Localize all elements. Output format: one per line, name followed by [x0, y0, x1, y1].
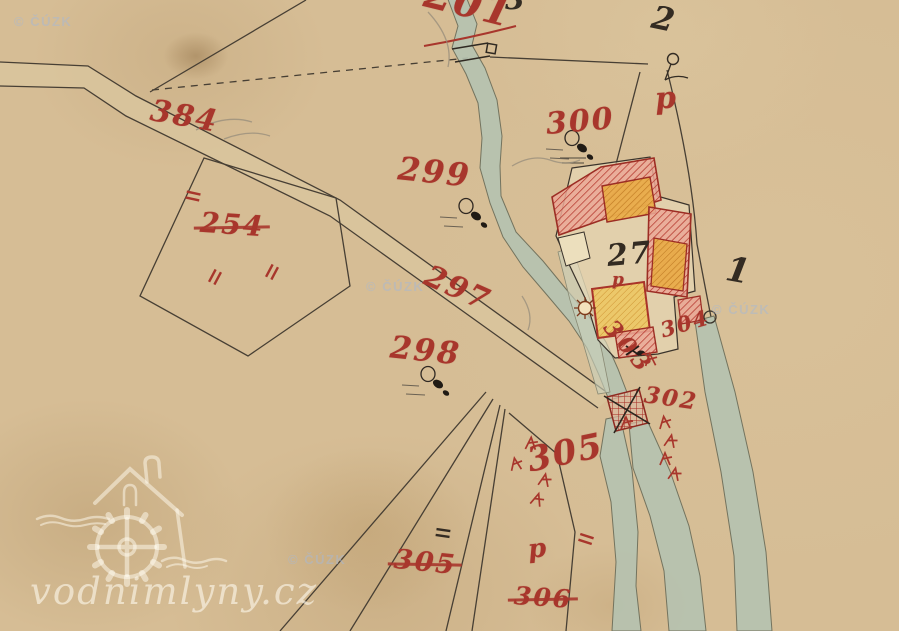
parcel-label-305: 305 [393, 546, 458, 579]
road-band [0, 62, 612, 408]
boundary-tick-mark [186, 192, 201, 201]
survey-arrow-mark [509, 457, 523, 471]
parcel-label-306: 306 [513, 583, 573, 612]
parcel-label-p: p [654, 83, 679, 115]
parcel-label-p: p [527, 535, 550, 563]
parcel-label-27: 27 [606, 238, 654, 272]
boundary-tick-mark [209, 269, 221, 284]
cuzk-watermark: © ČÚZK [366, 279, 424, 294]
site-watermark-text: vodnimlyny.cz [30, 570, 318, 613]
tree-symbol [440, 199, 488, 229]
boundary-tick-mark [436, 529, 451, 537]
survey-arrow-mark [664, 434, 678, 448]
cuzk-watermark: © ČÚZK [712, 302, 770, 317]
boundary-tick-mark [266, 264, 278, 279]
cuzk-watermark: © ČÚZK [14, 14, 72, 29]
parcel-label-299: 299 [397, 152, 473, 191]
map-viewport[interactable]: 20132384254299300297298271pp304303302305… [0, 0, 899, 631]
parcel-label-254: 254 [199, 209, 265, 241]
water-wheel-symbol [574, 297, 596, 319]
cuzk-watermark: © ČÚZK [288, 552, 346, 567]
boundary-tick-mark [578, 534, 593, 544]
survey-arrow-mark [659, 416, 672, 429]
tree-symbol [402, 367, 450, 397]
parcel-label-298: 298 [389, 332, 463, 370]
survey-arrow-mark [530, 492, 545, 507]
parcel-label-3: 3 [505, 0, 526, 14]
parcel-label-p: p [612, 272, 626, 289]
parcel-label-300: 300 [545, 104, 616, 140]
parcel-label-302: 302 [643, 383, 700, 413]
